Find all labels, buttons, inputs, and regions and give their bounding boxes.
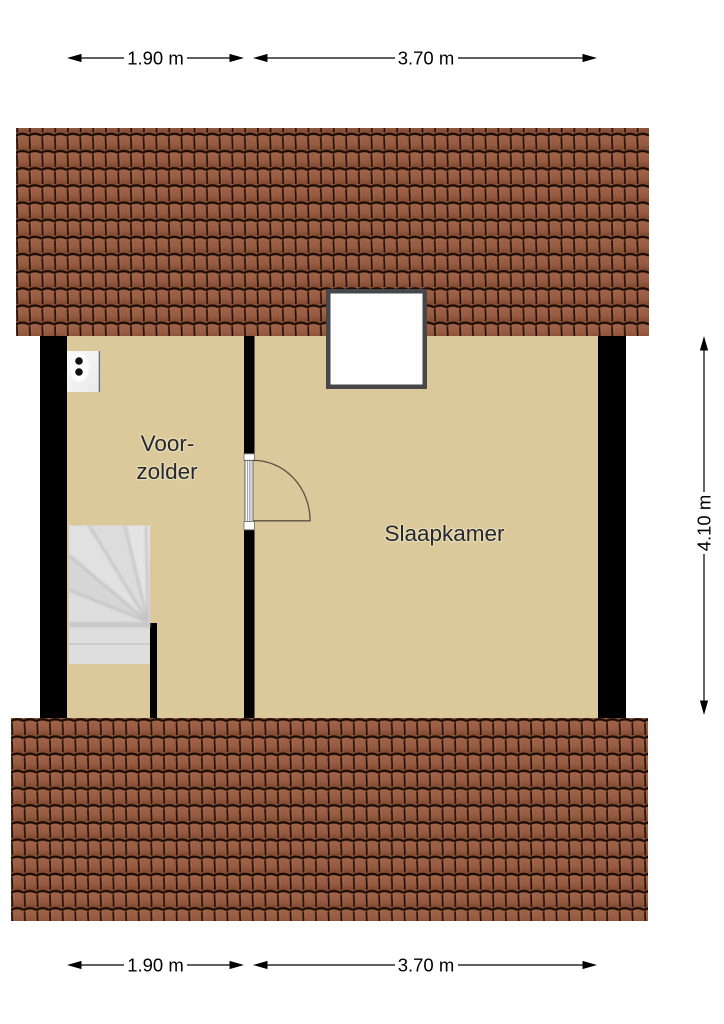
svg-text:1.90 m: 1.90 m <box>127 48 184 69</box>
svg-text:3.70 m: 3.70 m <box>398 48 455 69</box>
svg-text:zolder: zolder <box>136 459 198 484</box>
svg-text:1.90 m: 1.90 m <box>127 955 184 976</box>
svg-text:4.10 m: 4.10 m <box>694 495 715 552</box>
svg-text:Voor-: Voor- <box>141 431 195 456</box>
svg-text:3.70 m: 3.70 m <box>398 955 455 976</box>
svg-text:Slaapkamer: Slaapkamer <box>384 521 505 546</box>
